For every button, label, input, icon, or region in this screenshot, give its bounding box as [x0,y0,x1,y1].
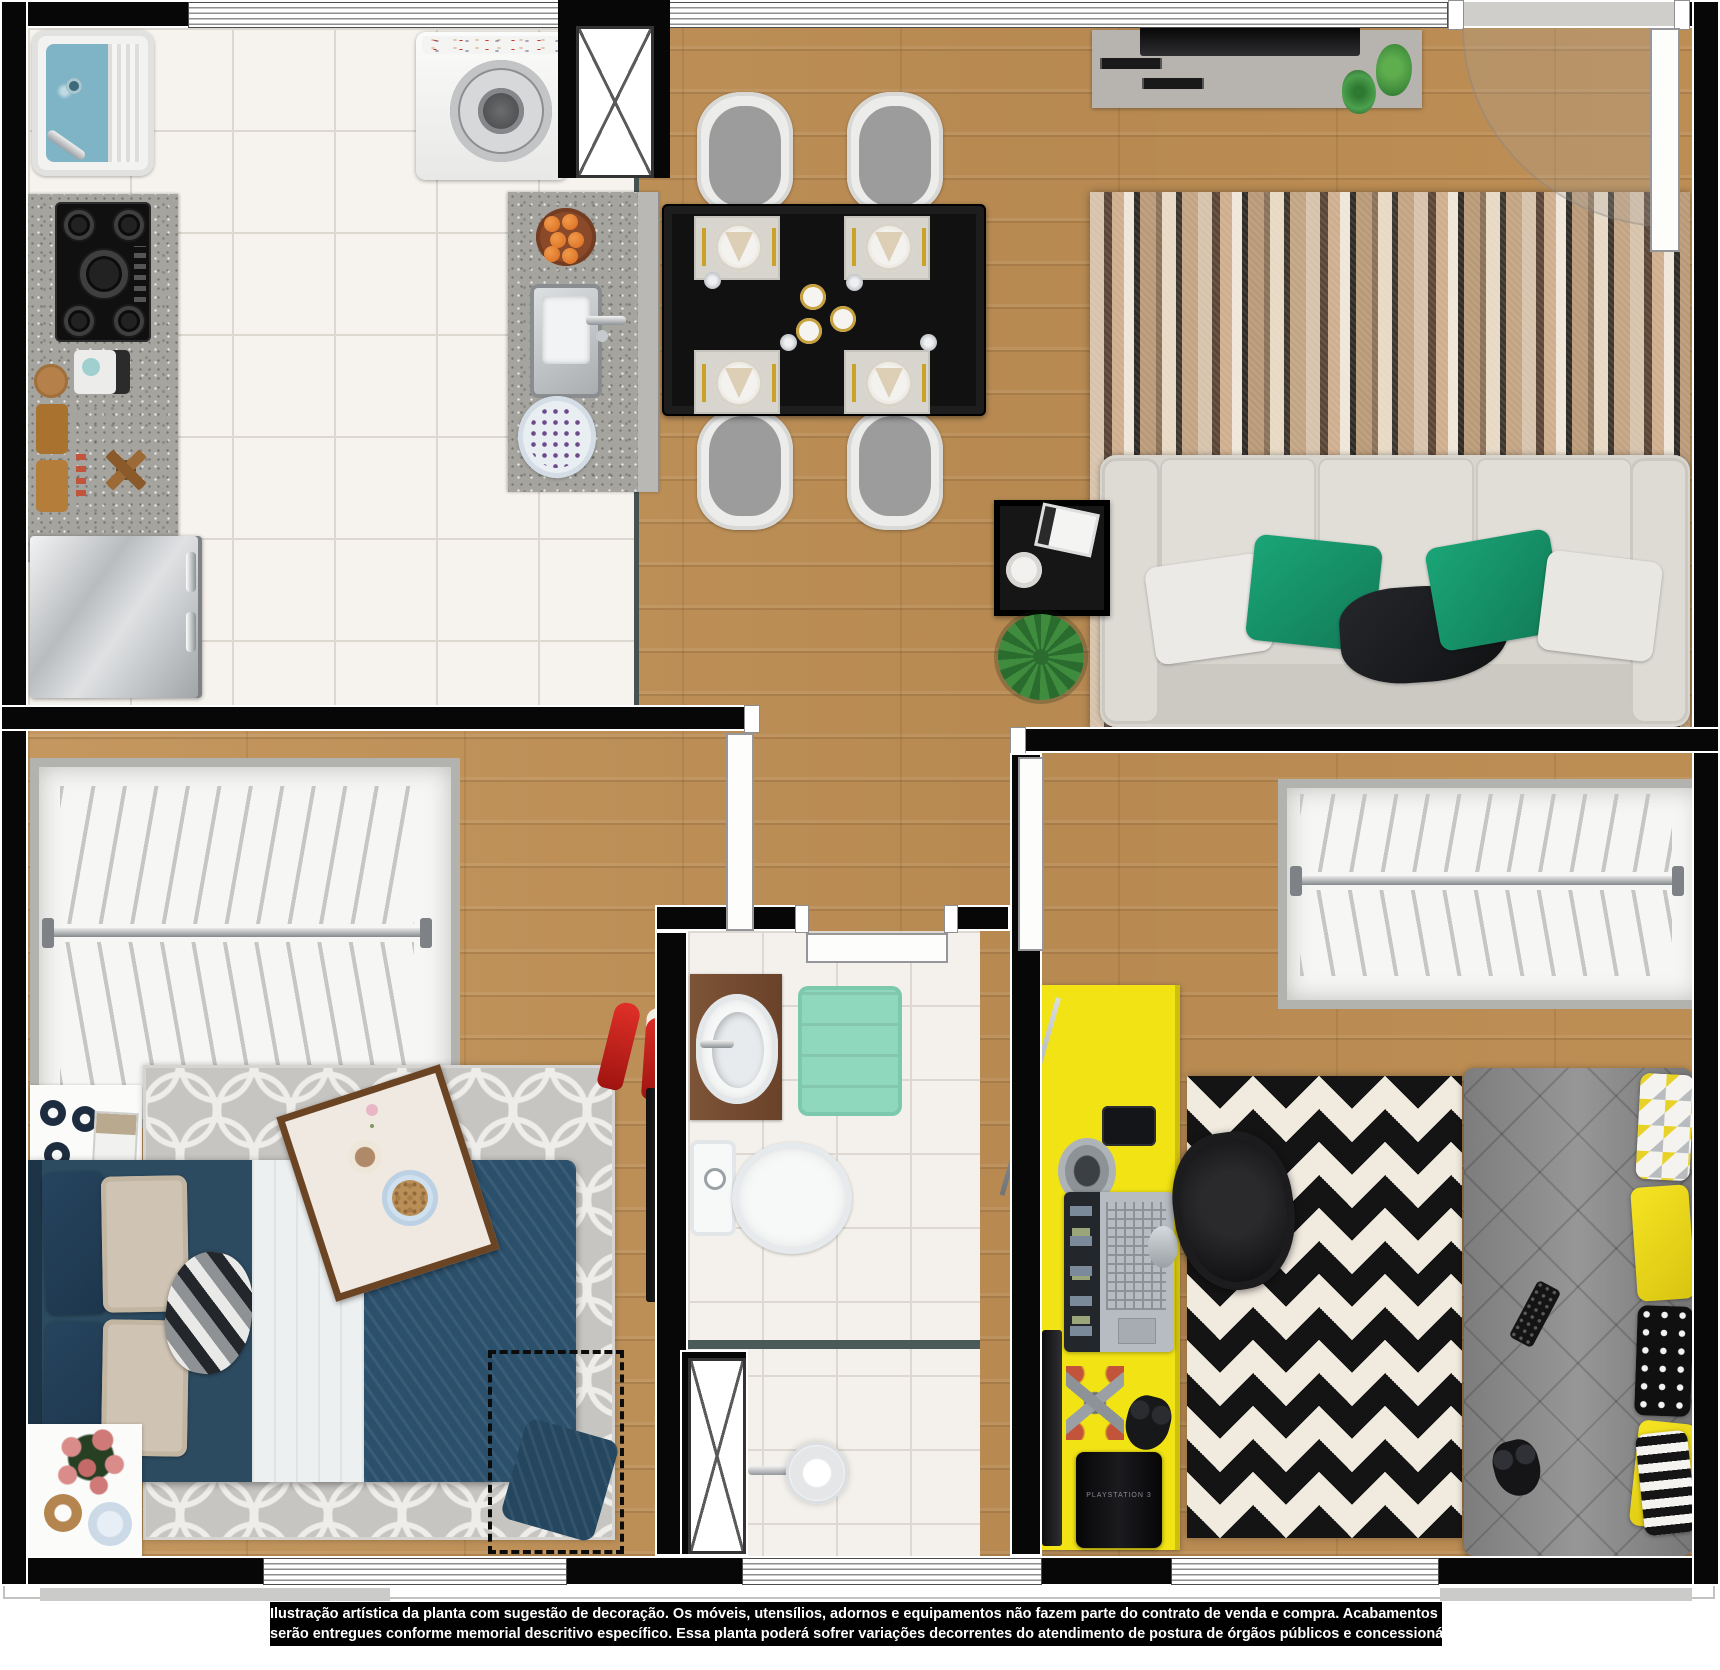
cutlery [702,228,706,266]
burner-icon [64,306,94,336]
game-console: PLAYSTATION 3 [1076,1452,1162,1548]
orange [568,232,584,248]
wardrobe-rail [48,928,426,937]
orange [562,214,578,230]
decor-plate [88,1502,132,1546]
coaster [40,1100,66,1126]
wall-end-cap [1010,727,1026,755]
burner-icon [80,250,128,298]
rail-cap [1672,866,1684,896]
napkin [875,368,903,398]
washing-machine-agitator [478,88,524,134]
cutting-board [36,404,68,454]
floor-plan: PLAYSTATION 3 Ilustração artística da pl… [0,0,1720,1670]
rail-cap [42,918,54,948]
cutting-board [34,364,68,398]
pillow-white [1536,549,1663,662]
disclaimer-line2: serão entregues conforme memorial descri… [270,1624,1442,1644]
hangers [1300,890,1672,976]
wall-bedroom2-top [1010,727,1720,753]
cup [1006,552,1042,588]
cup [830,306,856,332]
napkin [725,232,753,262]
game-console-label: PLAYSTATION 3 [1076,1492,1162,1499]
rattan-ring [44,1494,82,1532]
cutlery [772,364,776,402]
living-window [668,2,1448,28]
pie [528,406,586,468]
chair-cushion [859,416,931,516]
plant-icon [1342,70,1376,114]
wall-bedroom1-top [0,705,758,731]
faucet-knob [596,330,608,342]
pillow-navy [42,1171,109,1315]
entry-door-opening [1462,2,1674,26]
pillow-yellow [1630,1184,1696,1302]
bedroom2-door-leaf [1018,757,1044,951]
wall-left [0,0,28,1586]
drinking-glass [704,272,721,289]
bathroom-window [742,1558,1042,1585]
footing-shadow [40,1588,390,1601]
cup [796,318,822,344]
bedroom1-window [263,1558,567,1585]
wardrobe-rail [1296,876,1676,885]
counter-side-panel [638,192,660,492]
shower-glass-partition [688,1340,980,1349]
faucet-icon [586,316,626,325]
cutting-board [36,460,68,512]
fridge-handle [186,612,196,652]
laundry-tub-washboard [108,44,140,162]
chair-cushion [859,106,931,206]
laptop-screen [1064,1192,1100,1352]
rail-cap [420,918,432,948]
cutlery [922,364,926,402]
pillow-striped [1635,1430,1697,1537]
bedroom1-door-leaf [726,733,754,931]
wall-right [1692,0,1720,1586]
laptop-touchpad [1118,1318,1156,1344]
tv-icon [1042,1330,1062,1546]
hangers [1300,794,1672,872]
faucet-icon [700,1040,734,1048]
tv-icon [1140,26,1360,56]
floor-plant-icon [998,614,1084,700]
sink-basin [542,296,590,364]
toilet-bowl [732,1142,852,1254]
door-jamb [795,905,809,933]
disclaimer-bar: Ilustração artística da planta com suges… [270,1602,1442,1646]
door-jamb [944,905,958,933]
espresso-cup [82,358,100,376]
flush-button [704,1168,726,1190]
drain-icon [66,78,82,94]
cutlery [772,228,776,266]
pillow-diamond-pattern [1634,1305,1694,1417]
cooktop-knobs [134,246,146,302]
footing-shadow [1440,1588,1692,1601]
orange [544,246,560,262]
chair-cushion [709,416,781,516]
drinking-glass [780,334,797,351]
orange [544,216,560,232]
washing-machine-panel [422,36,562,54]
door-jamb [1448,0,1464,30]
smartphone [1102,1106,1156,1146]
drinking-glass [846,274,863,291]
napkin [875,232,903,262]
disclaimer-line1: Ilustração artística da planta com suges… [270,1604,1442,1624]
espresso-machine [74,350,130,394]
drinking-glass [920,334,937,351]
duct-shaft-x [576,26,654,178]
burner-icon [114,306,144,336]
cutlery [852,228,856,266]
entry-door-leaf [1650,28,1680,252]
pillow-triangle-pattern [1635,1073,1694,1182]
bath-mat [798,986,902,1116]
duct-shaft-x [688,1358,746,1554]
wall-shelf [1100,58,1162,69]
flower-icon [366,1104,378,1116]
rail-cap [1290,866,1302,896]
bedroom2-window [1171,1558,1439,1585]
rose-bouquet [52,1426,130,1496]
peppers [76,452,86,496]
napkin [725,368,753,398]
optional-furniture-dashed-outline [488,1350,624,1554]
chair-cushion [709,106,781,206]
orange [562,248,578,264]
cutlery [702,364,706,402]
coffee-cup [348,1140,382,1174]
burner-icon [114,210,144,240]
spice-mill [102,446,150,494]
cup [800,284,826,310]
cookies [392,1180,428,1216]
door-jamb [1674,0,1690,30]
refrigerator [30,536,202,698]
mouse [1148,1226,1178,1268]
shower-head [786,1442,848,1504]
sink-bowl [712,1012,764,1088]
kitchen-window [188,2,562,28]
burner-icon [64,210,94,240]
fridge-handle [186,552,196,592]
cutlery [852,364,856,402]
bathroom-door-leaf [806,933,948,963]
wall-shelf [1142,78,1204,89]
hangers [60,786,414,924]
cutlery [922,228,926,266]
wall-end-cap [744,705,760,733]
drone [1066,1366,1124,1440]
